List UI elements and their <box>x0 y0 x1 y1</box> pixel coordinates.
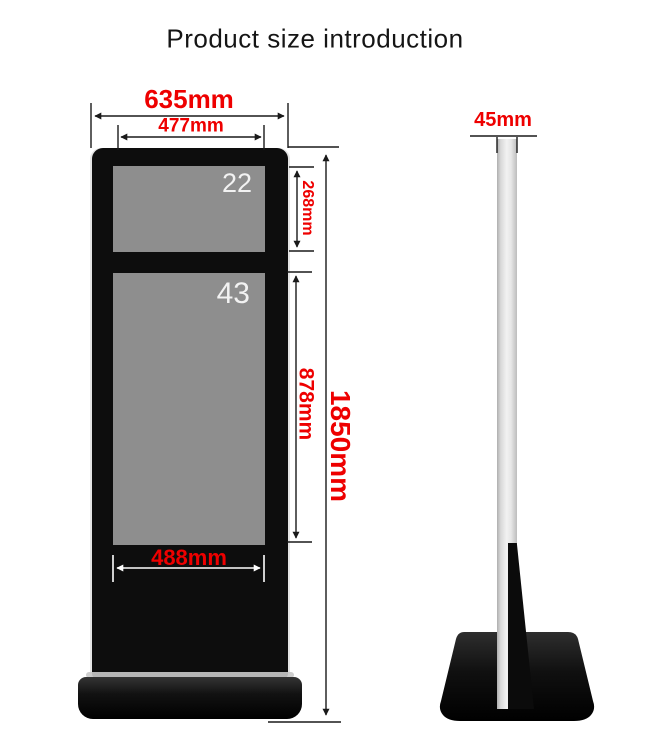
page-title: Product size introduction <box>166 24 463 55</box>
main-screen: 43 <box>113 273 265 545</box>
dim-screen-width: 477mm <box>158 117 224 136</box>
dim-main-screen-height: 878mm <box>296 368 317 440</box>
top-screen-size-label: 22 <box>222 166 265 197</box>
dim-lower-width: 488mm <box>151 547 227 569</box>
top-screen: 22 <box>113 166 265 252</box>
main-screen-size-label: 43 <box>217 273 265 310</box>
dim-side-thickness: 45mm <box>474 110 532 130</box>
kiosk-base-front <box>78 677 302 719</box>
dim-top-screen-height: 268mm <box>299 180 315 235</box>
kiosk-rear-bracket <box>508 543 534 709</box>
product-size-diagram: Product size introduction 22 43 <box>0 0 650 741</box>
dim-total-height: 1850mm <box>326 390 354 502</box>
dim-overall-width: 635mm <box>144 86 234 112</box>
